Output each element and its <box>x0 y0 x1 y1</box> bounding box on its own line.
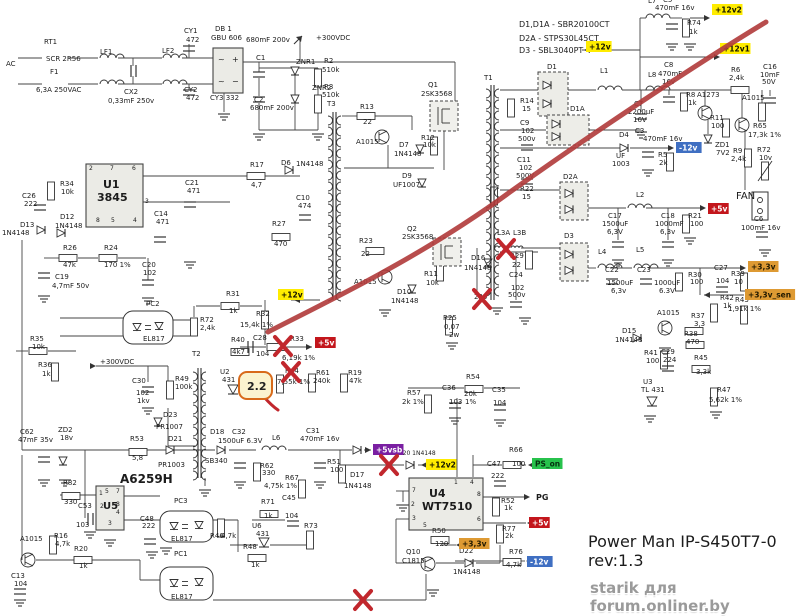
component-label: 431 <box>222 376 235 384</box>
component-label: D1A <box>570 105 585 113</box>
component-label: PC3 <box>174 497 188 505</box>
component-label: L6 <box>272 434 281 442</box>
component-label: A1015 <box>657 309 680 317</box>
component-label: 1N4148 <box>464 264 492 272</box>
component-label: 8 <box>96 217 100 224</box>
component-label: C30 <box>132 377 146 385</box>
component-label: 1500uF 6.3V <box>218 437 263 445</box>
component-label: 22 <box>361 250 370 258</box>
component-label: 2,4k <box>731 155 747 163</box>
component-label: R24 <box>104 244 118 252</box>
component-label: 2k <box>505 532 514 540</box>
component-label: C53 <box>78 502 92 510</box>
component-label: 330 <box>64 498 77 506</box>
component-label: 16V <box>633 116 647 124</box>
component-label: 1% <box>465 398 476 406</box>
component-label: 471 <box>156 218 169 226</box>
resistor-symbol <box>711 304 718 322</box>
component-label: 1500uF <box>602 220 628 228</box>
component-label: 6 <box>132 165 136 172</box>
component-label: 102 <box>521 127 534 135</box>
component-label: 100mF 16v <box>741 224 780 232</box>
component-label: D10 <box>397 288 411 296</box>
rail-badge--12v: +12v <box>586 41 612 52</box>
component-label: 10k <box>423 141 437 149</box>
component-label: 1N4148 <box>391 297 419 305</box>
component-label: 1N4148 <box>296 160 324 168</box>
component-label: DB 1 <box>215 25 232 33</box>
component-label: 100k <box>175 383 193 391</box>
component-label: 5 <box>111 217 115 224</box>
rail-badge--3-3v-sen: +3,3v_sen <box>745 289 795 300</box>
component-label: A1015 <box>356 138 379 146</box>
component-label: 7 <box>110 165 114 172</box>
component-label: D21 <box>168 435 182 443</box>
component-label: CY2 <box>184 86 198 94</box>
component-label: − <box>232 77 239 86</box>
component-label: 1000uF <box>654 279 680 287</box>
component-label: UF1007 <box>393 181 420 189</box>
component-label: 47mF 35v <box>18 436 53 444</box>
component-label: 104 <box>14 580 28 588</box>
resistor-symbol <box>759 103 766 121</box>
component-label: 2 <box>89 165 93 172</box>
component-label: C24 <box>509 271 523 279</box>
resistor-symbol <box>341 374 348 392</box>
component-label: R6 <box>731 66 741 74</box>
component-label: C11 <box>517 156 531 164</box>
component-label: 100 <box>330 466 343 474</box>
svg-text:+5v: +5v <box>711 205 728 214</box>
component-label: A1273 <box>697 91 720 99</box>
component-label: 1N4148 <box>2 229 30 237</box>
component-label: F1 <box>50 68 58 76</box>
component-label: 47k <box>349 377 363 385</box>
rail-badge--12v: +12v <box>278 289 304 300</box>
component-label: R72 <box>757 146 771 154</box>
component-label: 2w <box>449 331 459 339</box>
component-label: 500v <box>518 135 536 143</box>
component-label: R61 <box>316 369 330 377</box>
component-label: 2 <box>411 501 415 508</box>
component-label: EL817 <box>171 535 193 543</box>
component-label: FAN <box>736 191 755 202</box>
component-label: 1k <box>79 562 88 570</box>
component-label: D1,D1A - SBR20100CT <box>519 20 610 29</box>
component-label: 8 <box>116 501 120 508</box>
component-label: 240k <box>313 377 331 385</box>
component-label: 1kv <box>137 397 150 405</box>
component-label: ~ <box>218 77 225 86</box>
component-label: R57 <box>407 389 421 397</box>
component-label: 1k <box>229 307 238 315</box>
component-label: +300VDC <box>100 358 134 366</box>
component-label: C2 <box>254 96 263 104</box>
svg-text:+12v: +12v <box>281 291 303 300</box>
component-label: C1 <box>256 54 265 62</box>
component-label: 5 <box>423 522 427 529</box>
component-label: 1000mF <box>655 220 684 228</box>
component-label: C21 <box>185 179 199 187</box>
component-label: 1N4148 <box>453 568 481 576</box>
component-label: 17,3k 1% <box>748 131 781 139</box>
component-label: U2 <box>220 368 230 376</box>
component-label: 1 <box>454 479 458 486</box>
component-label: C18 <box>661 212 675 220</box>
component-label: R37 <box>691 312 705 320</box>
component-label: 472 <box>186 94 199 102</box>
component-label: 4 <box>133 217 137 224</box>
component-label: C8 <box>664 61 673 69</box>
component-label: 500v <box>508 291 526 299</box>
component-label: 104 <box>285 512 299 520</box>
component-label: C47 <box>487 460 501 468</box>
component-label: 4,7mF 50v <box>52 282 89 290</box>
component-label: D7 <box>399 141 409 149</box>
component-label: R65 <box>753 122 767 130</box>
component-label: R26 <box>63 244 77 252</box>
mosfet-box <box>430 101 458 131</box>
component-label: 3,3 <box>694 320 705 328</box>
component-label: EL817 <box>143 335 165 343</box>
component-label: 510k <box>322 66 340 74</box>
component-label: 3 <box>145 198 149 205</box>
component-label: 1k <box>504 504 513 512</box>
component-label: SB340 <box>205 457 228 465</box>
resistor-symbol <box>247 173 265 180</box>
component-label: T3 <box>326 100 336 108</box>
component-label: D16 <box>471 254 486 262</box>
component-label: R14 <box>520 97 534 105</box>
component-label: 2 <box>100 503 104 510</box>
component-label: 10k <box>32 343 46 351</box>
component-label: 2,4k <box>200 324 216 332</box>
component-label: A1015 <box>20 535 43 543</box>
component-label: 0,33mF 250v <box>108 97 154 105</box>
rail-badge--12v2: +12v2 <box>426 459 457 470</box>
component-label: 470 <box>274 240 287 248</box>
diode-pack-box <box>560 243 588 281</box>
component-label: 120 <box>435 540 448 548</box>
component-label: 4,7k <box>506 561 522 569</box>
component-label: EL817 <box>171 593 193 601</box>
component-label: R21 <box>688 212 702 220</box>
component-label: R48 <box>243 543 257 551</box>
component-label: 510k <box>322 91 340 99</box>
component-label: AC <box>6 60 16 68</box>
component-label: D6 <box>281 159 291 167</box>
component-label: 15 <box>522 193 531 201</box>
component-label: C27 <box>714 264 728 272</box>
component-label: U4 <box>429 487 446 500</box>
component-label: 100 <box>711 122 724 130</box>
component-label: R47 <box>717 386 731 394</box>
component-label: 1k <box>264 512 273 520</box>
component-label: R67 <box>285 474 299 482</box>
component-label: A1015 <box>742 94 765 102</box>
component-label: R31 <box>226 290 240 298</box>
component-label: PR1007 <box>156 423 183 431</box>
component-label: C26 <box>22 192 36 200</box>
component-label: 6,3V <box>607 228 623 236</box>
component-label: 4,7 <box>251 181 262 189</box>
component-label: 18v <box>60 434 73 442</box>
component-label: 1k <box>689 28 698 36</box>
component-label: 471 <box>187 187 200 195</box>
component-label: A6259H <box>120 472 173 486</box>
component-label: 1003 <box>612 160 630 168</box>
component-label: C13 <box>11 572 25 580</box>
svg-text:+5v: +5v <box>532 519 549 528</box>
component-label: 47k <box>63 261 77 269</box>
component-label: 1 <box>99 490 103 497</box>
component-label: D1 <box>547 63 557 71</box>
component-label: 7 <box>412 487 416 494</box>
resistor-symbol <box>52 363 59 381</box>
component-label: 3 <box>108 520 112 527</box>
component-label: R40 <box>231 336 245 344</box>
watermark: starik для forum.onliner.by <box>590 579 800 615</box>
component-label: R23 <box>359 237 373 245</box>
component-label: 0,07 <box>444 323 460 331</box>
svg-text:+5v: +5v <box>318 339 335 348</box>
resistor-symbol <box>191 318 198 336</box>
rail-badge--5vsb: +5vsb <box>373 444 404 455</box>
component-label: R71 <box>261 498 275 506</box>
component-label: C23 <box>637 266 651 274</box>
rail-badge--5v: +5v <box>708 203 729 214</box>
component-label: C32 <box>232 428 246 436</box>
component-label: 102 <box>136 389 149 397</box>
component-label: R39 <box>731 270 745 278</box>
component-label: L2 <box>636 191 644 199</box>
component-label: 1k <box>688 99 697 107</box>
component-label: 1k <box>42 370 51 378</box>
component-label: L3A <box>497 229 510 237</box>
component-label: R54 <box>466 373 480 381</box>
component-label: PC1 <box>174 550 188 558</box>
component-label: 1N4148 <box>394 150 422 158</box>
component-label: 50V <box>762 78 776 86</box>
component-label: R34 <box>60 180 74 188</box>
component-label: C9 <box>520 119 529 127</box>
component-label: L8 <box>648 71 656 79</box>
component-label: 222 <box>491 472 504 480</box>
component-label: C22 <box>605 266 619 274</box>
component-label: R41 <box>644 349 658 357</box>
component-label: R2 <box>324 57 333 65</box>
component-label: R53 <box>130 435 144 443</box>
component-label: R66 <box>509 446 523 454</box>
component-label: Q2 <box>407 225 417 233</box>
component-label: 5,62k 1% <box>709 396 742 404</box>
component-label: +300VDC <box>316 34 350 42</box>
component-label: D18 <box>210 428 224 436</box>
component-label: 10k <box>61 188 75 196</box>
resistor-symbol <box>731 87 749 94</box>
component-label: L5 <box>636 246 644 254</box>
component-label: 104 <box>493 399 507 407</box>
component-label: Q10 <box>406 548 420 556</box>
component-label: R32 <box>256 310 270 318</box>
component-label: R50 <box>432 527 446 535</box>
component-label: PR1003 <box>158 461 185 469</box>
component-label: 100 <box>690 220 703 228</box>
component-label: 4k7 <box>232 348 245 356</box>
component-label: C28 <box>253 334 267 342</box>
resistor-symbol <box>315 95 322 113</box>
svg-text:+3,3v: +3,3v <box>751 263 776 272</box>
component-label: 3 <box>412 515 416 522</box>
component-label: Q1 <box>428 81 438 89</box>
component-label: C20 <box>142 261 156 269</box>
component-label: 4 <box>470 479 474 486</box>
component-label: 2,4k <box>729 74 745 82</box>
component-label: RT1 <box>44 38 57 46</box>
component-label: 5,8 <box>132 454 143 462</box>
component-label: R82 <box>63 479 77 487</box>
schematic-title: Power Man IP-S450T7-0 rev:1.3 <box>588 532 800 570</box>
component-label: 5 <box>105 488 109 495</box>
component-label: D3 - SBL3040PT <box>519 46 583 55</box>
svg-text:+3,3v_sen: +3,3v_sen <box>748 291 791 300</box>
component-label: R19 <box>348 369 362 377</box>
component-label: CY1 <box>184 27 198 35</box>
component-label: R49 <box>175 375 189 383</box>
component-label: R8 <box>686 91 695 99</box>
component-label: ~ <box>218 55 225 64</box>
svg-text:+5vsb: +5vsb <box>376 446 403 455</box>
component-label: TL 431 <box>640 386 665 394</box>
component-label: 680mF 200v <box>246 36 290 44</box>
resistor-symbol <box>167 381 174 399</box>
component-label: R11 <box>710 114 724 122</box>
component-label: 15 <box>522 105 531 113</box>
component-label: 10 <box>734 278 743 286</box>
component-label: D9 <box>402 172 412 180</box>
component-label: 470mF 16v <box>300 435 339 443</box>
component-label: 8 <box>477 491 481 498</box>
component-label: 222 <box>142 522 155 530</box>
component-label: C17 <box>608 212 622 220</box>
component-label: 10k <box>426 279 440 287</box>
component-label: R17 <box>250 161 264 169</box>
component-label: R13 <box>360 103 374 111</box>
resistor-symbol <box>508 99 515 117</box>
component-label: R3 <box>324 83 333 91</box>
component-label: 330 <box>262 469 275 477</box>
component-label: 4,75k 1% <box>264 482 297 490</box>
component-label: 104 <box>256 350 270 358</box>
rail-badge--12v2: +12v2 <box>712 4 743 15</box>
component-label: 4,7k <box>221 532 237 540</box>
schematic-svg: ACRT1SCR 2R56F16,3A 250VACLF1CX20,33mF 2… <box>0 0 800 616</box>
component-label: 2k 1% <box>402 398 424 406</box>
component-label: U6 <box>252 522 262 530</box>
component-label: 10v <box>759 154 772 162</box>
component-label: C14 <box>154 210 168 218</box>
svg-text:-12v: -12v <box>530 558 549 567</box>
component-label: D13 <box>20 221 34 229</box>
component-label: 680mF 200v <box>250 104 294 112</box>
rail-badge--3-3v: +3,3v <box>748 261 779 272</box>
component-label: C31 <box>306 427 320 435</box>
component-label: 6,3v <box>660 228 675 236</box>
rail-badge-ps-on: PS_on <box>532 458 563 469</box>
component-label: L4 <box>598 248 607 256</box>
component-label: D15 <box>622 327 636 335</box>
component-label: ZD2 <box>58 426 73 434</box>
component-label: 6,3v <box>611 287 626 295</box>
resistor-symbol <box>667 153 674 171</box>
component-label: 474 <box>298 202 312 210</box>
component-label: T2 <box>191 350 201 358</box>
component-label: L3B <box>513 229 526 237</box>
component-label: R16 <box>54 532 68 540</box>
component-label: C19 <box>55 273 69 281</box>
component-label: 6 <box>477 516 481 523</box>
component-label: R76 <box>509 548 523 556</box>
component-label: 7V2 <box>716 149 730 157</box>
component-label: 102 <box>519 164 532 172</box>
component-label: C36 <box>442 384 456 392</box>
component-label: 4,7k <box>55 540 71 548</box>
component-label: 222 <box>24 200 37 208</box>
resistor-symbol <box>307 531 314 549</box>
svg-text:+12v: +12v <box>589 43 611 52</box>
resistor-symbol <box>299 480 306 498</box>
component-label: D3 <box>564 232 574 240</box>
component-label: 100 <box>690 278 703 286</box>
component-label: R35 <box>30 335 44 343</box>
rail-badge--12v: -12v <box>676 142 702 153</box>
component-label: R38 <box>684 330 698 338</box>
component-label: 3,3k <box>696 368 712 376</box>
component-label: 2k <box>659 159 668 167</box>
svg-text:PS_on: PS_on <box>535 460 560 469</box>
component-label: PC2 <box>146 300 160 308</box>
component-label: 15,4k 1% <box>240 321 273 329</box>
component-label: C10 <box>296 194 310 202</box>
component-label: C62 <box>20 428 34 436</box>
component-label: 470 <box>686 338 699 346</box>
component-label: R36 <box>38 361 52 369</box>
component-label: 6,19k 1% <box>282 354 315 362</box>
component-label: R20 <box>74 545 88 553</box>
component-label: C6 <box>754 215 764 223</box>
component-label: C1815 <box>402 557 425 565</box>
component-label: WT7510 <box>422 500 473 513</box>
component-label: CX2 <box>124 88 138 96</box>
resistor-symbol <box>48 182 55 200</box>
component-label: C35 <box>492 386 506 394</box>
component-label: D12 <box>60 213 74 221</box>
component-label: U1 <box>103 178 120 191</box>
component-label: 472 <box>186 36 199 44</box>
component-label: R11 <box>424 270 438 278</box>
rail-badge--5v: +5v <box>315 337 336 348</box>
svg-text:+12v2: +12v2 <box>715 6 742 15</box>
component-label: C16 <box>763 63 777 71</box>
resistor-symbol <box>526 251 533 269</box>
component-label: LF2 <box>162 47 174 55</box>
rail-badge--12v: -12v <box>527 556 553 567</box>
component-label: 20k <box>464 390 478 398</box>
component-label: 170 1% <box>104 261 131 269</box>
component-label: 3845 <box>97 191 128 204</box>
component-label: R74 <box>687 19 701 27</box>
diode-pack-box <box>538 72 568 116</box>
